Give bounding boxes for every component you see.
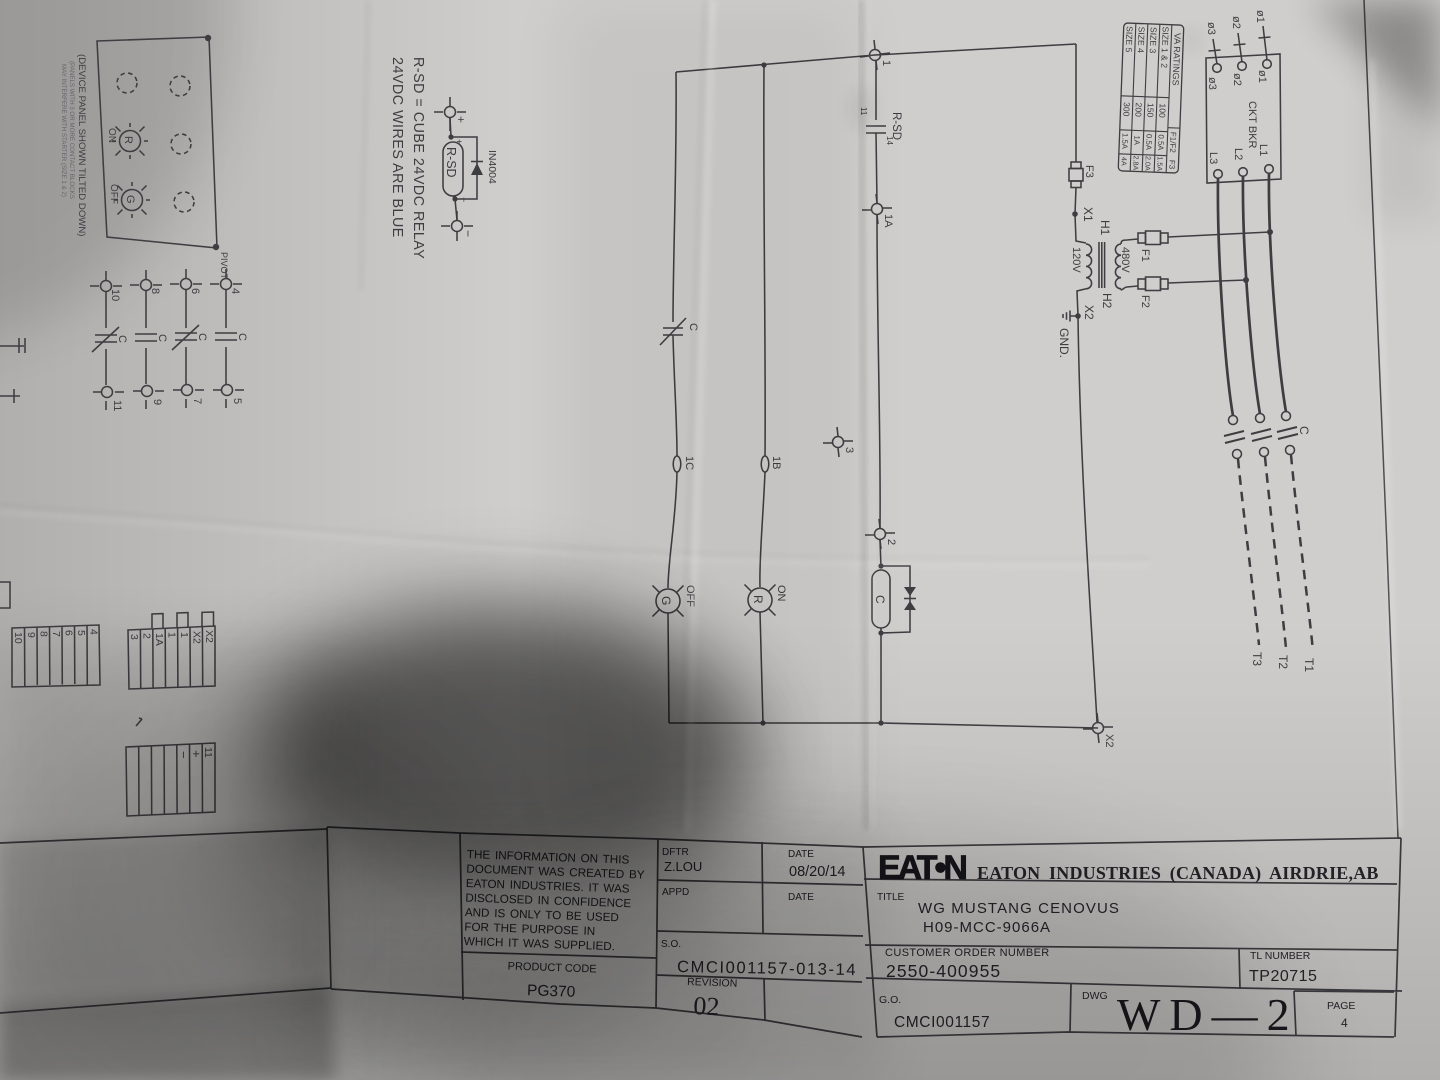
svg-text:G: G <box>124 195 136 204</box>
svg-text:SIZE 5: SIZE 5 <box>1124 26 1135 53</box>
svg-text:F3: F3 <box>1167 160 1176 170</box>
svg-text:6: 6 <box>63 630 75 636</box>
svg-text:F3: F3 <box>1083 165 1095 178</box>
svg-text:11: 11 <box>111 400 123 411</box>
svg-text:PAGE: PAGE <box>1327 1000 1355 1012</box>
svg-text:5: 5 <box>75 630 87 636</box>
svg-text:T2: T2 <box>1276 655 1290 669</box>
svg-text:10: 10 <box>109 289 121 301</box>
svg-text:6: 6 <box>189 288 201 294</box>
svg-text:(PANELS WITH 3 OR MORE CONTACT: (PANELS WITH 3 OR MORE CONTACT BLOCKS <box>68 61 75 199</box>
svg-text:1: 1 <box>880 60 892 66</box>
svg-text:7: 7 <box>191 398 203 404</box>
svg-text:ø2: ø2 <box>1231 73 1243 86</box>
svg-text:ON: ON <box>106 128 117 143</box>
svg-text:R-SD: R-SD <box>890 112 902 140</box>
svg-text:L3: L3 <box>1207 152 1219 164</box>
svg-text:GND.: GND. <box>1057 328 1071 358</box>
svg-text:C: C <box>116 335 128 343</box>
svg-text:T1: T1 <box>1302 658 1316 672</box>
svg-text:H1: H1 <box>1098 220 1112 236</box>
svg-text:4: 4 <box>229 288 241 294</box>
svg-text:ø3: ø3 <box>1205 22 1217 35</box>
svg-text:F1/F2: F1/F2 <box>1168 132 1178 154</box>
svg-text:X2: X2 <box>1082 305 1096 320</box>
svg-text:F1: F1 <box>1139 249 1151 262</box>
svg-text:4: 4 <box>1341 1016 1348 1030</box>
svg-text:7: 7 <box>50 631 62 637</box>
svg-text:150: 150 <box>1145 103 1156 118</box>
svg-text:PIVOT: PIVOT <box>219 252 229 280</box>
svg-text:1A: 1A <box>1132 135 1141 146</box>
svg-text:200: 200 <box>1133 102 1144 117</box>
svg-text:3: 3 <box>128 634 140 640</box>
svg-text:L2: L2 <box>1232 148 1244 160</box>
svg-text:5: 5 <box>231 398 243 404</box>
svg-text:ø2: ø2 <box>1230 16 1242 29</box>
svg-text:ø1: ø1 <box>1256 70 1268 83</box>
svg-text:1: 1 <box>166 632 178 638</box>
svg-text:IN4004: IN4004 <box>486 150 498 184</box>
svg-text:X1: X1 <box>1081 207 1095 222</box>
svg-text:CKT BKR: CKT BKR <box>1246 101 1258 149</box>
svg-text:300: 300 <box>1121 102 1132 117</box>
svg-text:0.5A: 0.5A <box>1156 134 1166 151</box>
svg-text:F2: F2 <box>1139 295 1151 308</box>
svg-text:SIZE 1 & 2: SIZE 1 & 2 <box>1159 26 1171 68</box>
svg-text:4A: 4A <box>1119 157 1128 166</box>
svg-text:VA RATINGS: VA RATINGS <box>1170 33 1182 86</box>
svg-text:2.0A: 2.0A <box>1143 156 1153 171</box>
svg-text:X2: X2 <box>1103 734 1115 747</box>
svg-text:C: C <box>196 333 208 341</box>
svg-text:T3: T3 <box>1250 652 1264 666</box>
svg-text:120V: 120V <box>1070 247 1082 273</box>
svg-text:TL NUMBER: TL NUMBER <box>1250 950 1311 962</box>
svg-text:1A: 1A <box>882 214 894 228</box>
svg-text:1.5A: 1.5A <box>1155 156 1165 171</box>
svg-text:24VDC WIRES ARE BLUE: 24VDC WIRES ARE BLUE <box>389 57 405 238</box>
svg-text:SIZE 4: SIZE 4 <box>1136 26 1147 53</box>
svg-text:+: + <box>454 139 464 144</box>
svg-text:(DEVICE PANEL SHOWN TILTED DOW: (DEVICE PANEL SHOWN TILTED DOWN) <box>76 54 87 236</box>
svg-text:C: C <box>156 334 168 342</box>
svg-text:100: 100 <box>1157 103 1168 118</box>
svg-text:2: 2 <box>885 539 897 545</box>
svg-text:L1: L1 <box>1257 144 1269 156</box>
svg-text:8: 8 <box>38 631 50 637</box>
svg-text:−: − <box>461 230 475 237</box>
svg-text:1.5A: 1.5A <box>1120 133 1130 150</box>
svg-text:C: C <box>1297 426 1311 435</box>
svg-text:480V: 480V <box>1119 247 1131 273</box>
svg-text:0.5A: 0.5A <box>1144 134 1154 151</box>
svg-text:+: + <box>454 116 468 123</box>
svg-text:R: R <box>122 136 134 144</box>
svg-text:9: 9 <box>151 399 163 405</box>
svg-text:SIZE 3: SIZE 3 <box>1148 27 1159 54</box>
svg-text:R-SD = CUBE 24VDC RELAY: R-SD = CUBE 24VDC RELAY <box>410 57 426 259</box>
svg-text:4: 4 <box>88 629 100 635</box>
svg-text:C: C <box>236 333 248 341</box>
svg-text:2.8A: 2.8A <box>1131 155 1141 170</box>
svg-text:8: 8 <box>149 288 161 294</box>
svg-text:R-SD: R-SD <box>444 147 458 178</box>
svg-text:C: C <box>873 595 887 604</box>
svg-text:2: 2 <box>141 633 153 639</box>
svg-text:ø1: ø1 <box>1254 10 1266 23</box>
svg-text:ø3: ø3 <box>1206 77 1218 90</box>
svg-text:OFF: OFF <box>108 184 119 204</box>
svg-text:H2: H2 <box>1100 293 1114 309</box>
svg-text:MAY INTERFERE WITH STARTER (SI: MAY INTERFERE WITH STARTER (SIZE 1 & 2) <box>60 64 67 197</box>
svg-text:9: 9 <box>25 632 37 638</box>
svg-text:1: 1 <box>178 632 190 638</box>
